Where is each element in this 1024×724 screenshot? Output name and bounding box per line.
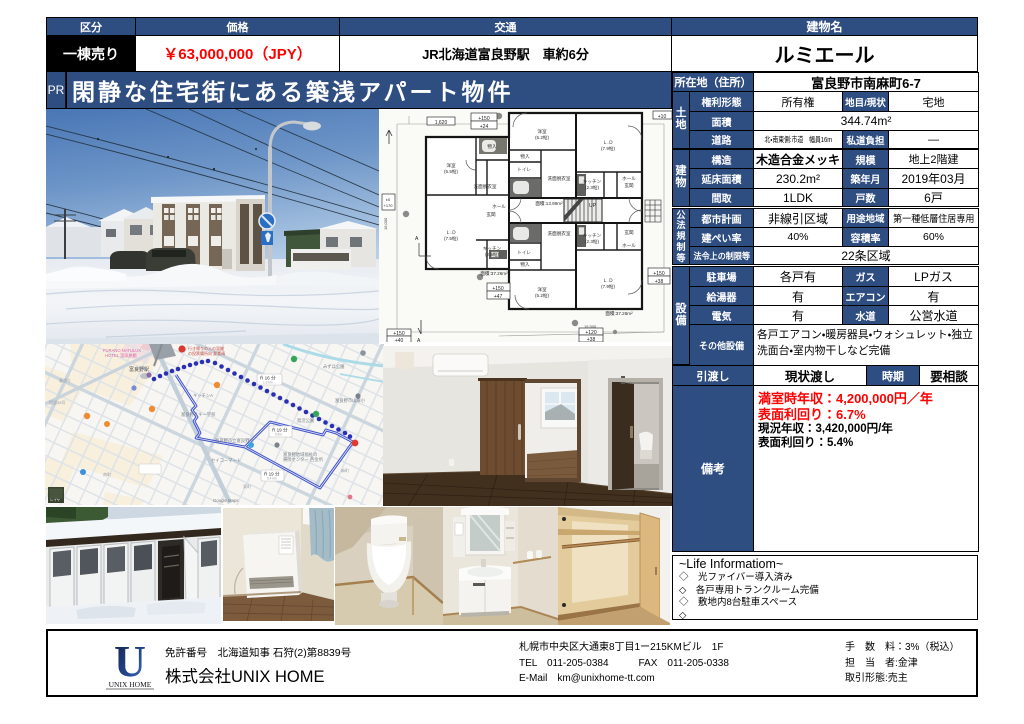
svg-text:みずほ公園: みずほ公園 <box>323 363 344 370</box>
svg-text:+150: +150 <box>478 116 489 122</box>
svg-text:UP: UP <box>589 203 597 209</box>
svg-text:洗面脱衣室: 洗面脱衣室 <box>548 175 571 182</box>
svg-text:洗面脱衣室: 洗面脱衣室 <box>474 183 497 190</box>
svg-text:帰除センター 西金所: 帰除センター 西金所 <box>283 456 324 463</box>
svg-text:(7.5帖): (7.5帖) <box>444 235 459 242</box>
svg-text:富良野駅: 富良野駅 <box>129 366 149 373</box>
svg-text:Ｌ.Ｄ: Ｌ.Ｄ <box>446 230 456 235</box>
svg-text:富良野市立富良野小: 富良野市立富良野小 <box>215 437 254 444</box>
svg-text:麻町: 麻町 <box>341 468 349 473</box>
svg-text:5 km: 5 km <box>275 433 282 437</box>
svg-text:キッチン: キッチン <box>583 179 602 184</box>
svg-text:+150: +150 <box>653 271 664 277</box>
svg-text:物入: 物入 <box>520 261 530 268</box>
svg-text:+47: +47 <box>494 294 503 300</box>
svg-text:ホール: ホール <box>622 243 636 248</box>
svg-text:春通り: 春通り <box>59 377 71 383</box>
svg-text:+120: +120 <box>585 330 596 336</box>
svg-text:(5.5帖): (5.5帖) <box>444 168 459 175</box>
svg-text:トイレ: トイレ <box>517 167 531 172</box>
svg-text:+170: +170 <box>383 203 393 208</box>
svg-text:洋室: 洋室 <box>537 128 547 135</box>
svg-text:(7.9帖): (7.9帖) <box>601 283 616 290</box>
svg-text:ホール: ホール <box>492 204 506 209</box>
svg-text:+150: +150 <box>393 331 404 337</box>
svg-text:HOTEL 温泉旅館: HOTEL 温泉旅館 <box>105 352 137 359</box>
svg-text:+40: +40 <box>395 338 404 342</box>
svg-text:16,000: 16,000 <box>383 217 388 230</box>
svg-text:(7.9帖): (7.9帖) <box>601 145 616 152</box>
svg-text:物入: 物入 <box>520 153 530 160</box>
svg-text:5.4 km: 5.4 km <box>267 477 277 481</box>
svg-text:鳥沼公園: 鳥沼公園 <box>297 417 314 424</box>
svg-text:の投票場所向 夏素晴: の投票場所向 夏素晴 <box>188 350 225 356</box>
svg-text:+10: +10 <box>658 114 667 120</box>
svg-text:Ｌ.Ｄ: Ｌ.Ｄ <box>603 140 613 145</box>
svg-text:キッチン: キッチン <box>583 233 602 238</box>
svg-text:+24: +24 <box>480 124 489 130</box>
svg-text:富良野スキー学校: 富良野スキー学校 <box>181 411 216 418</box>
svg-text:東町: 東町 <box>243 483 251 489</box>
svg-text:洋室: 洋室 <box>446 162 456 169</box>
svg-text:±0: ±0 <box>386 197 391 202</box>
svg-text:(5.2帖): (5.2帖) <box>535 134 550 141</box>
svg-text:(2.5帖): (2.5帖) <box>485 251 500 258</box>
svg-text:1,620: 1,620 <box>435 120 448 126</box>
svg-text:+150: +150 <box>492 286 503 292</box>
svg-text:トイレ: トイレ <box>517 250 531 255</box>
svg-text:Ｌ.Ｄ: Ｌ.Ｄ <box>603 278 613 283</box>
svg-text:面積:37.26m²: 面積:37.26m² <box>480 270 508 277</box>
svg-text:面積:37.26m²: 面積:37.26m² <box>605 310 633 317</box>
svg-text:キッチンA: キッチンA <box>193 393 213 398</box>
svg-text:国道38号: 国道38号 <box>49 399 65 405</box>
svg-text:面積:13.99m²: 面積:13.99m² <box>535 200 563 207</box>
svg-text:玄関: 玄関 <box>486 211 496 218</box>
svg-text:Google Maps: Google Maps <box>213 498 239 503</box>
svg-text:キッチン: キッチン <box>483 246 502 251</box>
svg-text:洋室: 洋室 <box>537 286 547 293</box>
svg-text:洗面脱衣室: 洗面脱衣室 <box>548 230 571 237</box>
svg-text:物入: 物入 <box>487 143 497 150</box>
svg-text:+38: +38 <box>655 279 664 285</box>
svg-text:+38: +38 <box>587 337 596 342</box>
svg-text:(2.3帖): (2.3帖) <box>585 238 600 245</box>
svg-text:南町: 南町 <box>103 471 111 477</box>
svg-text:(5.2帖): (5.2帖) <box>535 292 550 299</box>
svg-text:レイヤ: レイヤ <box>50 498 61 502</box>
svg-text:ホール: ホール <box>622 176 636 181</box>
svg-text:玄関: 玄関 <box>624 182 634 189</box>
svg-text:玄関: 玄関 <box>624 229 634 236</box>
svg-text:1.3 km: 1.3 km <box>263 381 273 385</box>
svg-text:富良野市山麻小: 富良野市山麻小 <box>335 397 366 404</box>
svg-text:UNIX HOME: UNIX HOME <box>109 680 152 689</box>
svg-text:(2.3帖): (2.3帖) <box>585 184 600 191</box>
